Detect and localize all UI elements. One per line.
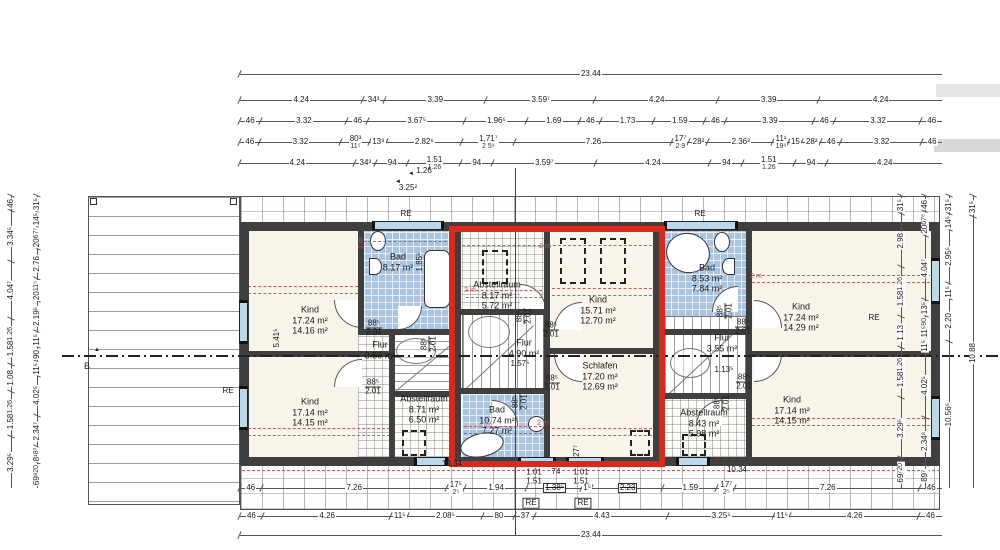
dim-sub-label: 1.26: [7, 327, 14, 341]
room-area: 17.14 m²: [774, 405, 810, 416]
dim-col-right-3: 31⁵14⁵2.95⁵11⁵2.2010.56⁵: [942, 196, 956, 488]
dim-segment: 11⁵: [391, 510, 407, 522]
dim-col-right-2: 462067⁸4.04⁷13⁵11⁵9011⁵4.02⁵2.34⁸89⁷: [918, 196, 932, 488]
dim-segment: 14⁵: [30, 212, 44, 227]
dim-label: 94: [471, 159, 482, 167]
stack-74: 74: [552, 468, 561, 477]
arrow-126-icon: ◄: [408, 170, 414, 179]
dim-segment: 46: [922, 136, 942, 148]
room-area: 7.84 m²: [692, 283, 723, 294]
dim-label: 46: [819, 117, 830, 125]
dim-1034-left: 10.34: [442, 460, 462, 469]
stack-101-right: 1.01 1.51: [573, 469, 589, 486]
dim-row-overall-top: 23.44: [240, 68, 942, 80]
dim-label: 7.26: [345, 484, 363, 492]
sink-icon: [722, 258, 735, 275]
dim-label: 46: [244, 138, 255, 146]
dim-col-left-outer: 463.34⁵4.04⁷1.581.261.081.581.263.29⁵: [4, 196, 18, 488]
dim-label: 2067⁸: [921, 213, 929, 235]
door-height: 2.01: [735, 328, 751, 336]
room-label-left-kind-top: Kind17.24 m²14.16 m²: [292, 304, 328, 336]
dim-label: 3.59⁷: [534, 159, 554, 167]
dim-label: 46: [352, 117, 363, 125]
room-area: 8.53 m²: [692, 273, 723, 284]
dim-label: 1.38⁵: [543, 483, 566, 493]
re-terrace: RE: [222, 387, 233, 396]
dim-label: 10.88: [969, 342, 977, 364]
dim-segment: 1.13: [894, 317, 908, 348]
dim-col-left-inner: 31⁵14⁵2067⁷2.762011⁵2.19⁵11⁵9011⁵4.02⁵2.…: [30, 196, 44, 488]
dim-segment: 46: [919, 510, 942, 522]
dim-segment: 1.69: [527, 115, 580, 127]
sink-icon: [369, 258, 382, 275]
re-right: RE: [868, 314, 879, 323]
door-size-label: 88⁵2.01: [714, 395, 731, 411]
window: [372, 221, 444, 230]
room-name: Flur: [707, 333, 738, 344]
dim-segment: 2067⁷: [30, 227, 44, 249]
room-area: 6.50 m²: [400, 414, 448, 425]
dim-segment: 46: [347, 115, 368, 127]
dim-label: 4.26: [318, 512, 336, 520]
terrace-post: [90, 198, 97, 205]
dim-sub-label: 67⁷: [33, 228, 40, 238]
dim-segment: 3.39: [718, 94, 820, 106]
dim-segment: 3.67⁵: [368, 115, 466, 127]
dim-label: 31⁵: [33, 197, 41, 211]
dim-label: 4.04⁷: [921, 258, 929, 278]
dim-segment: 31⁵: [966, 196, 980, 217]
dim-segment: 1.511.26: [743, 157, 795, 169]
door-size-label: 88⁵2.01: [365, 379, 381, 396]
re-box-1: RE: [522, 498, 539, 509]
dim-label: 3.32: [873, 138, 891, 146]
dim-segment: 4.02⁵: [918, 353, 932, 418]
dim-segment: 46: [821, 136, 841, 148]
dim-label: 46: [927, 138, 938, 146]
dim-segment: 3.32: [261, 115, 348, 127]
dim-segment: 11⁵: [30, 362, 44, 376]
dashed-outline-rect: [402, 430, 426, 456]
section-marker-icon: ▲: [94, 346, 100, 355]
dim-label: 3.39: [761, 117, 779, 125]
dim-label: 46: [710, 117, 721, 125]
dim-segment: 4.04⁷: [918, 236, 932, 301]
dim-segment: 3.32: [835, 115, 922, 127]
dim-sub-label: 20: [33, 465, 40, 473]
dim-row-top-1: 4.2434³3.393.59⁷4.243.394.24: [240, 94, 942, 106]
dim-label: 1.94: [487, 484, 505, 492]
dim-segment: 46: [240, 510, 263, 522]
dim-label: 46: [925, 512, 936, 520]
room-area: 17.24 m²: [783, 312, 819, 323]
door-height: 2.01: [726, 303, 734, 319]
dim-label: 46: [921, 199, 929, 210]
dim-segment: 3.59⁷: [486, 94, 595, 106]
height-2m-line: [248, 428, 390, 429]
dim-label: 2.08⁵: [435, 512, 456, 520]
dim-label: 28²: [805, 138, 819, 146]
room-area: 14.15 m²: [292, 417, 328, 428]
door-height: 2.01: [366, 329, 382, 337]
dim-label: 80: [493, 512, 504, 520]
dim-label: 1.581.26: [897, 357, 905, 388]
dim-1855: 1.85⁵: [416, 253, 425, 272]
dim-label: 11⁵: [33, 333, 41, 347]
dim-label: 4.24: [292, 96, 310, 104]
dim-label: 3.32: [869, 117, 887, 125]
dim-segment: 11⁵: [774, 510, 790, 522]
window: [664, 221, 738, 230]
height-2m-line: [358, 241, 452, 242]
dim-segment: 4.26: [263, 510, 392, 522]
dim-segment: 46: [705, 115, 726, 127]
dim-label: 90: [33, 349, 41, 360]
dim-label: 1.581.26: [7, 326, 15, 357]
stack-101-left: 1.01 1.51: [526, 469, 542, 486]
dim-segment: 94: [376, 157, 408, 169]
dim-label: 3.32: [292, 138, 310, 146]
dim-label: 17⁷2 9: [674, 135, 688, 150]
highlight-rectangle: [449, 226, 665, 467]
dim-label: 69⁸20: [33, 464, 41, 486]
room-label-left-abstellraum: Abstellraum8.71 m²6.50 m²: [400, 393, 448, 425]
room-name: Kind: [292, 396, 328, 407]
dim-segment: 4.04⁷: [4, 262, 18, 319]
dim-label: 46: [246, 512, 257, 520]
dim-segment: 4.24: [827, 157, 942, 169]
dim-label: 3.67⁵: [406, 117, 427, 125]
room-label-left-bad: Bad8.17 m²: [383, 252, 414, 273]
dim-segment: 90: [30, 347, 44, 362]
dim-row-bottom-1: 467.2617⁵2⁵1.941.38⁵1⁵2.231.5917⁷2⁵7.264…: [240, 482, 942, 494]
dim-label: 11¹19⁶: [774, 135, 787, 150]
door-height: 2.01: [365, 388, 381, 396]
dim-label: 1.59: [671, 117, 689, 125]
dim-label: 7.26: [819, 484, 837, 492]
room-label-right-flur: Flur3.55 m²: [707, 333, 738, 354]
dim-segment: 3.34⁵: [4, 211, 18, 262]
dim-segment: 1.581.26: [4, 392, 18, 437]
dim-segment: 2.76: [30, 249, 44, 280]
door-size-label: 88⁵2.01: [735, 319, 751, 336]
room-label-left-kind-bottom: Kind17.14 m²14.15 m²: [292, 396, 328, 428]
room-area: 17.14 m²: [292, 407, 328, 418]
dim-segment: 46: [4, 196, 18, 211]
dim-sub-label: 11⁵: [350, 143, 362, 150]
dim-segment: 1.08: [4, 365, 18, 392]
dim-segment: 11⁵: [942, 284, 956, 299]
dim-segment: 1.581.26: [4, 319, 18, 364]
dim-label: 94: [806, 159, 817, 167]
dim-segment: 4.24: [595, 94, 718, 106]
dim-segment: 11⁵90: [918, 316, 932, 339]
dim-label: 13⁵: [921, 301, 929, 315]
dim-label: 2.19⁵: [33, 306, 41, 327]
dim-segment: 46: [921, 115, 942, 127]
dim-sub-label: 11⁵: [33, 281, 40, 291]
dim-segment: 4.26: [790, 510, 919, 522]
room-area: 14.15 m²: [774, 415, 810, 426]
door-height: 2.01: [430, 336, 438, 352]
dim-label: 37: [520, 512, 531, 520]
arrow-3252-icon: ◄: [395, 178, 401, 187]
dim-label: 1.581.26: [7, 399, 15, 430]
dim-126: 1.26: [416, 167, 432, 176]
dim-segment: 8¹8³: [30, 447, 44, 463]
room-area: 5.98 m²: [680, 428, 728, 439]
dim-segment: 17⁷2 9: [672, 136, 689, 148]
dim-label: 23.44: [580, 70, 602, 78]
height-2m-4: 2 m: [750, 273, 762, 282]
dim-label: 1.08: [7, 369, 15, 387]
dim-segment: 3.39: [726, 115, 814, 127]
dim-segment: 2.34⁷: [30, 416, 44, 447]
height-2m-1: 2 m: [539, 243, 551, 252]
dim-label: 2.23: [618, 483, 638, 493]
room-area: 3.50 m²: [365, 350, 396, 361]
dim-label: 31⁵: [945, 198, 953, 212]
dim-label: 80³11⁵: [349, 135, 363, 150]
room-name: Bad: [692, 262, 723, 273]
dim-label: 4.24: [289, 159, 307, 167]
dim-label: 4.24: [648, 96, 666, 104]
dim-label: 11⁵: [775, 512, 789, 520]
dim-3252: 3.25²: [399, 184, 417, 193]
room-area: 17.24 m²: [292, 315, 328, 326]
dim-label: 4.02⁵: [33, 385, 41, 406]
dim-label: 8¹8³: [33, 447, 41, 462]
dim-segment: 69⁸20: [30, 463, 44, 488]
dim-label: 2.36³: [731, 138, 751, 146]
dim-label: 13⁹: [371, 138, 385, 146]
height-2m-3: 2 m: [537, 420, 549, 429]
room-label-right-abstellraum: Abstellraum8.43 m²5.98 m²: [680, 407, 728, 439]
dim-label: 15: [790, 138, 801, 146]
dim-label: 46: [245, 484, 256, 492]
dim-segment: 94: [461, 157, 493, 169]
dim-label: 34³: [367, 96, 381, 104]
dim-segment: 37: [515, 510, 536, 522]
dim-label: 3.29⁵: [897, 418, 905, 439]
room-area: 3.55 m²: [707, 343, 738, 354]
room-label-right-bad: Bad8.53 m²7.84 m²: [692, 262, 723, 294]
dim-label: 23.44: [580, 531, 602, 539]
dim-label: 46: [585, 117, 596, 125]
dim-label: 14⁵: [33, 212, 41, 226]
scan-artifact: [934, 139, 1000, 152]
dim-5415: 5.41⁵: [273, 329, 282, 348]
dim-segment: 11⁵: [30, 332, 44, 346]
dim-label: 10.56⁵: [945, 402, 953, 427]
room-area: 14.29 m²: [783, 322, 819, 333]
room-name: Kind: [774, 394, 810, 405]
door-height: 2.01: [723, 395, 731, 411]
room-area: 8.17 m²: [383, 262, 414, 273]
dim-label: 46: [926, 117, 937, 125]
dim-segment: 2.20: [942, 299, 956, 342]
dim-segment: 4.24: [240, 94, 363, 106]
dim-label: 1.511.26: [760, 156, 778, 171]
dim-segment: 3.59⁷: [493, 157, 596, 169]
dim-segment: 15: [789, 136, 803, 148]
dim-segment: 11¹19⁶: [773, 136, 788, 148]
dim-segment: 28²: [802, 136, 821, 148]
dim-label: 3.39: [426, 96, 444, 104]
dim-label: 2067⁷: [33, 227, 41, 248]
dim-row-overall-bottom: 23.44: [240, 529, 942, 541]
dim-segment: 10.88: [966, 217, 980, 488]
dim-segment: 31⁵: [894, 196, 908, 214]
room-area: 8.71 m²: [400, 404, 448, 415]
dim-label: 17⁵2⁵: [449, 481, 463, 496]
dim-sub-label: 2⁵: [450, 489, 462, 496]
dim-label: 1.581.26: [897, 276, 905, 307]
dim-label: 1.96⁵: [486, 117, 507, 125]
dim-label: 11⁵: [33, 362, 41, 376]
terrace-deck: [88, 196, 240, 505]
dim-segment: 2067⁸: [918, 212, 932, 236]
dim-label: 2.76: [33, 255, 41, 273]
dim-label: 94: [387, 159, 398, 167]
door-height: 2.01: [736, 383, 752, 391]
dim-label: 31⁵: [969, 200, 977, 214]
dim-segment: 2.95⁵: [942, 230, 956, 285]
dim-segment: 1.581.26: [894, 348, 908, 398]
dim-sub-label: 1.26: [897, 358, 904, 372]
dim-segment: 69⁷20: [894, 458, 908, 488]
dim-label: 2.95⁵: [945, 246, 953, 267]
terrace-post: [230, 198, 237, 205]
dim-segment: 1.94: [465, 482, 527, 494]
dim-sub-label: 1.26: [7, 400, 14, 414]
room-area: 8.43 m²: [680, 418, 728, 429]
dim-sub-label: 19⁶: [775, 143, 786, 150]
re-top-mid: RE: [694, 210, 705, 219]
dim-label: 2011⁵: [33, 280, 41, 301]
dim-sub-label: 20: [897, 463, 904, 471]
dim-segment: 1.96⁵: [465, 115, 527, 127]
dim-sub-label: 67⁸: [921, 214, 928, 225]
height-2m-5: 2 m: [358, 237, 367, 249]
dim-segment: 1.581.26: [894, 267, 908, 317]
dim-1135: 1.13⁵: [715, 366, 734, 375]
dim-segment: 46: [918, 196, 932, 212]
dim-label: 11⁵: [945, 285, 953, 299]
dim-label: 14⁵: [945, 215, 953, 229]
dim-segment: 3.29⁵: [4, 437, 18, 488]
dim-segment: 1,71⁷2 5⁹: [462, 136, 515, 148]
room-name: Abstellraum: [400, 393, 448, 404]
window: [239, 386, 248, 430]
dim-row-top-4: 4.2434³941.511.26943.59⁷4.24941.511.2694…: [240, 157, 942, 169]
dim-segment: 14⁵: [942, 214, 956, 230]
window: [676, 457, 710, 466]
dim-segment: 2.23: [592, 482, 663, 494]
dim-segment: 31⁵: [942, 196, 956, 214]
room-label-right-kind-bottom: Kind17.14 m²14.15 m²: [774, 394, 810, 426]
dim-label: 1.13: [897, 324, 905, 342]
dim-label: 11⁵: [393, 512, 407, 520]
dim-sub-label: 1.26: [761, 164, 777, 171]
dim-segment: 1.59: [663, 482, 717, 494]
dim-segment: 89⁷: [918, 465, 932, 489]
dim-sub-label: 8³: [33, 448, 40, 454]
dim-segment: 46: [240, 136, 260, 148]
dim-label: 1.69: [545, 117, 563, 125]
height-2m-2: 2 m: [464, 287, 476, 296]
dim-segment: 3.29⁵: [894, 398, 908, 458]
dim-segment: 4.43: [535, 510, 668, 522]
room-area: 14.16 m²: [292, 325, 328, 336]
dim-label: 11⁵: [921, 339, 929, 353]
dim-label: 34³: [359, 159, 373, 167]
dim-segment: 2.34⁸: [918, 418, 932, 464]
dim-row-bottom-2: 464.2611⁵2.08⁵80374.433.25⁵11⁵4.2646: [240, 510, 942, 522]
wall: [664, 393, 748, 399]
dim-label: 46: [7, 198, 15, 209]
dim-segment: 3.39: [385, 94, 487, 106]
dim-segment: 13⁵: [918, 300, 932, 316]
height-2m-line: [248, 293, 358, 294]
dim-segment: 17⁷2⁵: [717, 482, 735, 494]
dim-segment: 2.36³: [708, 136, 774, 148]
height-2m-line: [242, 470, 940, 471]
room-name: Bad: [383, 252, 414, 263]
toilet-icon: [714, 232, 730, 252]
dim-sub-label: 2 9: [675, 143, 687, 150]
dim-segment: 3.32: [841, 136, 922, 148]
dim-label: 2.34⁸: [921, 431, 929, 452]
dim-label: 2.98: [897, 232, 905, 250]
dim-label: 4.24: [872, 96, 890, 104]
dim-label: 69⁷20: [897, 462, 905, 484]
dim-segment: 46: [814, 115, 835, 127]
dim-segment: 7.26: [735, 482, 920, 494]
dim-sub-label: 2⁵: [720, 489, 732, 496]
dim-segment: 4.02⁵: [30, 376, 44, 416]
dim-segment: 4.24: [819, 94, 942, 106]
dim-1034-right: 10.34: [727, 466, 747, 475]
dim-row-top-2: 463.32463.67⁵1.96⁵1.69461.731.59463.3946…: [240, 115, 942, 127]
dim-segment: 94: [710, 157, 742, 169]
height-2m-line: [248, 435, 390, 436]
dim-label: 4.26: [846, 512, 864, 520]
door-size-label: 88⁵2.01: [736, 374, 752, 391]
dim-label: 3.34⁵: [7, 226, 15, 247]
room-name: Flur: [365, 340, 396, 351]
dim-segment: 34³: [363, 94, 385, 106]
dim-segment: 23.44: [240, 529, 942, 541]
dim-label: 4.24: [876, 159, 894, 167]
bathtub-icon: [424, 250, 450, 308]
dim-segment: 80: [483, 510, 515, 522]
dim-segment: 13⁹: [370, 136, 387, 148]
dim-label: 7.26: [585, 138, 603, 146]
dim-segment: 7.26: [262, 482, 447, 494]
dim-sub-label: 2 5⁹: [479, 143, 497, 150]
door-size-label: 88⁵2.01: [366, 320, 382, 337]
dim-segment: 3.32: [260, 136, 341, 148]
window: [931, 258, 940, 304]
dim-277: 27⁷: [573, 445, 582, 457]
dim-segment: 46: [580, 115, 601, 127]
dim-row-top-3: 463.3280³11⁵13⁹2.82⁶1,71⁷2 5⁹7.2617⁷2 92…: [240, 136, 942, 148]
dim-segment: 28²: [689, 136, 708, 148]
room-name: Kind: [292, 304, 328, 315]
door-size-label: 88⁵2.01: [421, 336, 438, 352]
dim-segment: 2.08⁵: [408, 510, 483, 522]
